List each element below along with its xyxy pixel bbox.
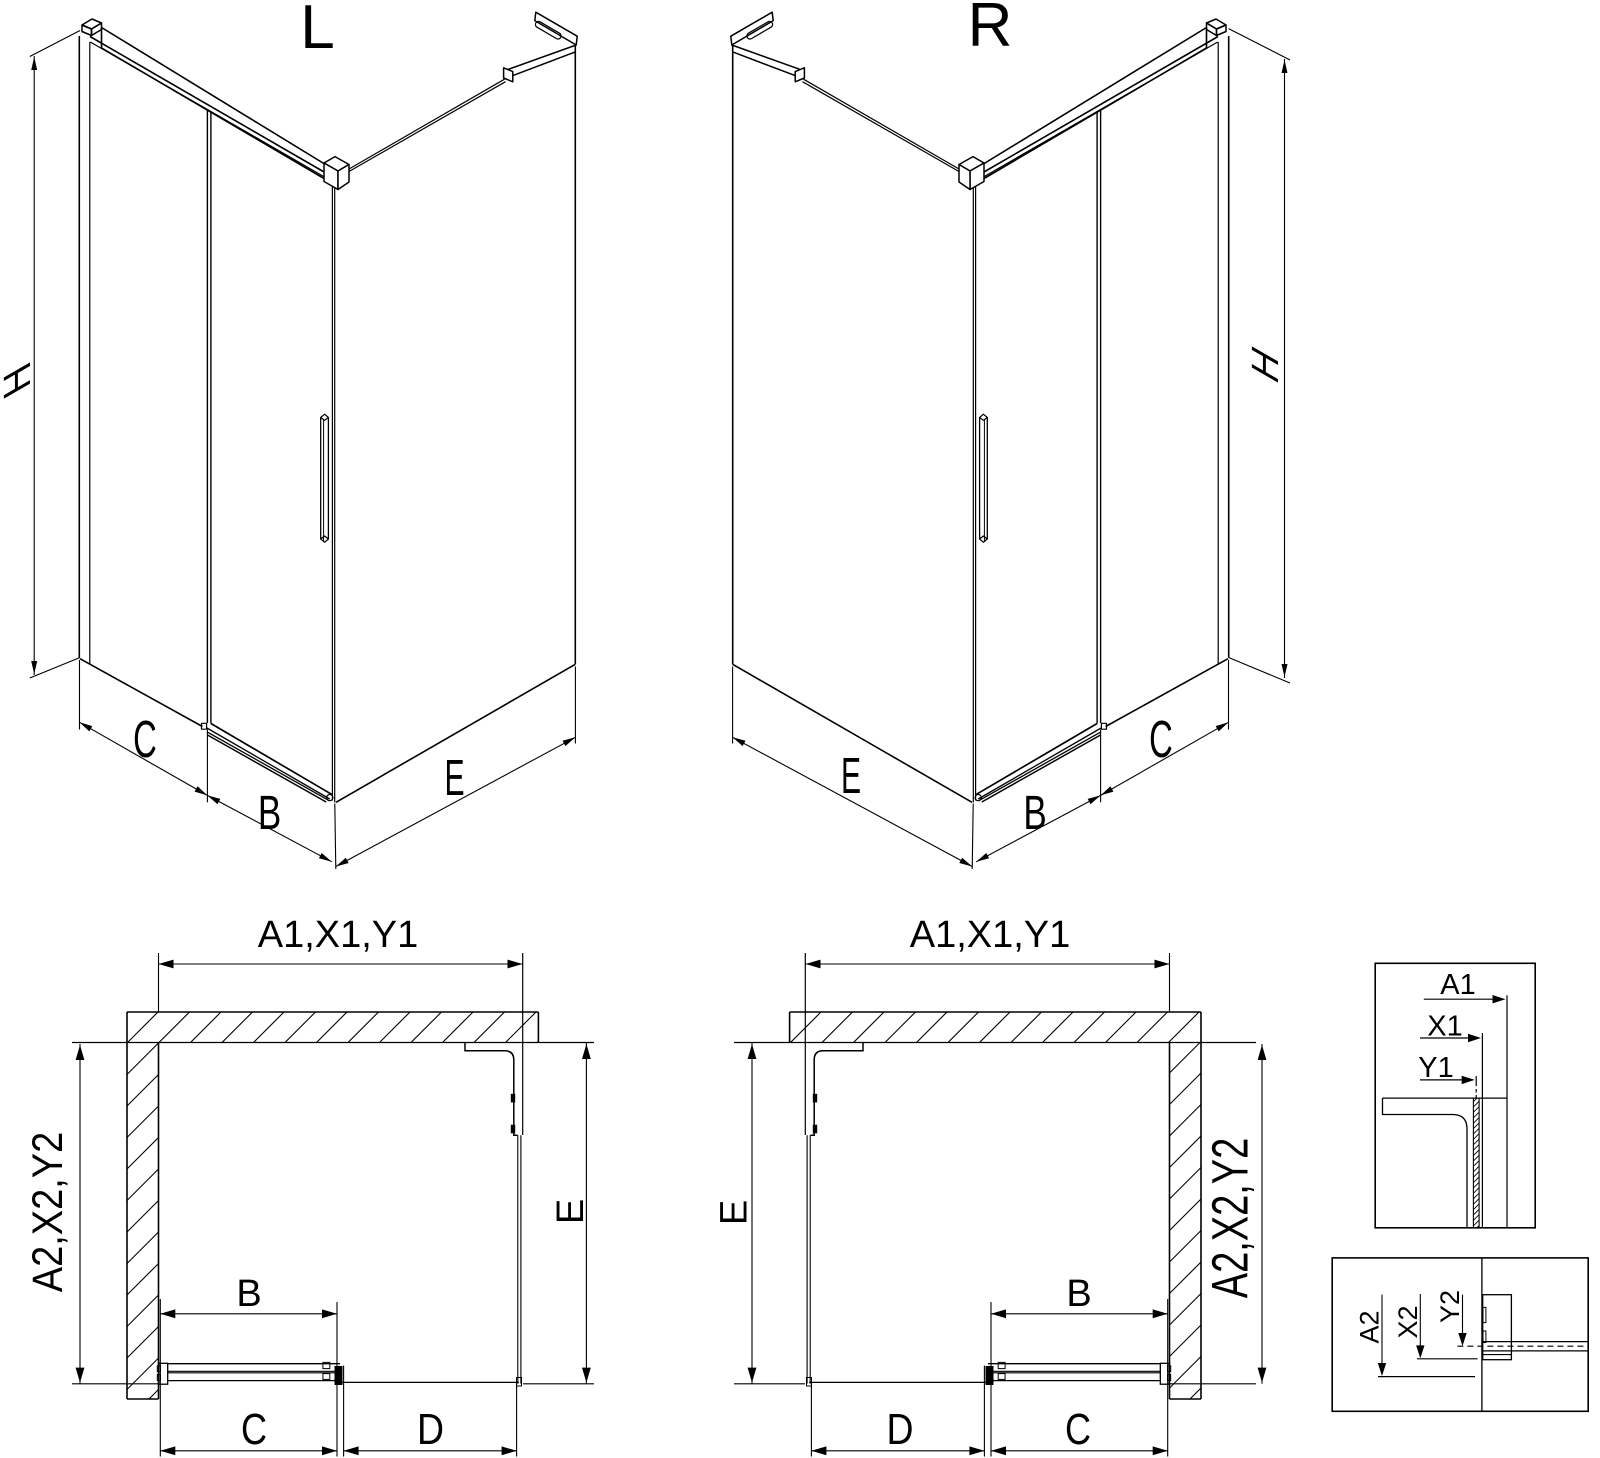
- svg-text:R: R: [968, 0, 1013, 60]
- svg-text:C: C: [1065, 1405, 1091, 1454]
- svg-text:E: E: [841, 747, 861, 804]
- svg-text:A2,X2,Y2: A2,X2,Y2: [23, 1132, 72, 1292]
- svg-text:A2: A2: [1355, 1310, 1385, 1343]
- svg-text:D: D: [886, 1404, 913, 1454]
- svg-text:E: E: [550, 1199, 592, 1224]
- svg-text:C: C: [1149, 712, 1173, 769]
- svg-text:B: B: [1023, 786, 1046, 840]
- svg-text:L: L: [300, 0, 334, 62]
- svg-text:E: E: [714, 1200, 756, 1225]
- svg-text:E: E: [444, 749, 464, 806]
- svg-text:B: B: [236, 1273, 261, 1315]
- svg-text:B: B: [1066, 1273, 1091, 1315]
- svg-text:X2: X2: [1393, 1305, 1423, 1338]
- svg-text:D: D: [417, 1404, 444, 1454]
- svg-text:Y1: Y1: [1418, 1052, 1453, 1084]
- svg-text:A1,X1,Y1: A1,X1,Y1: [910, 914, 1071, 956]
- svg-text:B: B: [258, 786, 281, 840]
- svg-text:Y2: Y2: [1435, 1290, 1465, 1323]
- svg-text:C: C: [241, 1405, 267, 1454]
- svg-text:A1: A1: [1440, 969, 1475, 1001]
- svg-text:A2,X2,Y2: A2,X2,Y2: [1203, 1138, 1258, 1299]
- svg-text:A1,X1,Y1: A1,X1,Y1: [258, 914, 419, 956]
- svg-text:C: C: [133, 712, 157, 769]
